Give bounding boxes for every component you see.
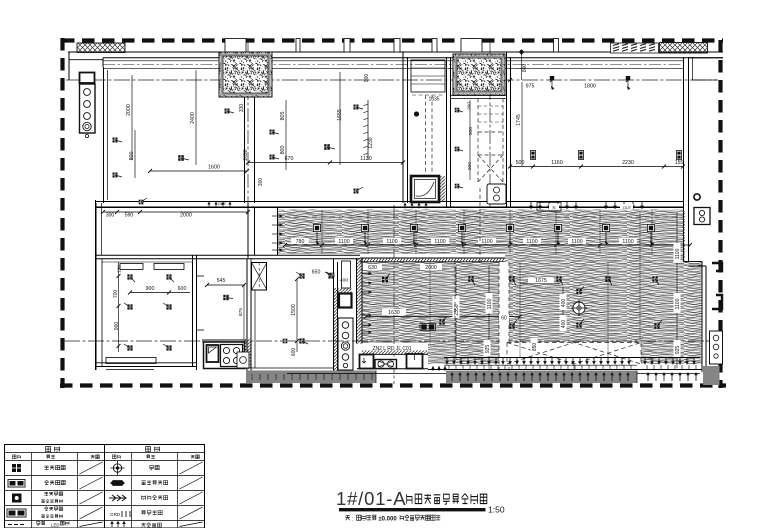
- svg-text:330: 330: [239, 104, 245, 113]
- svg-text:1130: 1130: [360, 156, 371, 162]
- svg-text:1100: 1100: [338, 239, 349, 245]
- svg-text:800: 800: [129, 152, 135, 161]
- svg-text:925: 925: [675, 346, 681, 355]
- svg-text:700: 700: [113, 290, 119, 299]
- svg-text:2000: 2000: [126, 104, 132, 116]
- svg-text:1100: 1100: [675, 248, 681, 259]
- svg-text:1100: 1100: [571, 239, 582, 245]
- svg-text:400: 400: [340, 278, 348, 284]
- svg-text:GRD: GRD: [110, 512, 121, 517]
- svg-text:1:50: 1:50: [488, 505, 505, 515]
- svg-text:1675: 1675: [535, 278, 547, 284]
- svg-text:155: 155: [675, 160, 684, 166]
- svg-text:300: 300: [258, 178, 264, 187]
- svg-text:1600: 1600: [208, 165, 220, 171]
- svg-text:2400: 2400: [190, 112, 196, 124]
- svg-text:975: 975: [526, 84, 535, 90]
- svg-text:500: 500: [516, 160, 525, 166]
- svg-text:±0.000: ±0.000: [378, 517, 397, 523]
- svg-text:2000: 2000: [180, 213, 192, 219]
- svg-text:1230: 1230: [368, 137, 374, 148]
- svg-text:1655: 1655: [337, 109, 343, 121]
- svg-text:1500: 1500: [291, 304, 297, 316]
- svg-text:900: 900: [467, 162, 473, 170]
- svg-text:600: 600: [291, 348, 297, 357]
- svg-text:N: N: [552, 205, 555, 210]
- svg-text:2230: 2230: [622, 160, 634, 166]
- svg-text:670: 670: [285, 156, 294, 162]
- svg-text:650: 650: [312, 270, 321, 276]
- svg-text:800: 800: [280, 146, 286, 155]
- svg-text:1100: 1100: [487, 298, 493, 309]
- svg-text:300: 300: [106, 213, 115, 219]
- svg-text:400: 400: [561, 299, 567, 308]
- svg-text:900: 900: [468, 127, 474, 135]
- svg-text:925: 925: [485, 345, 491, 354]
- svg-text:780: 780: [296, 239, 305, 245]
- svg-text:900: 900: [146, 286, 155, 292]
- svg-text:600: 600: [178, 286, 187, 292]
- svg-text:630: 630: [368, 265, 377, 271]
- svg-text:875: 875: [238, 308, 244, 316]
- svg-text:1160: 1160: [551, 160, 562, 166]
- svg-text:2090: 2090: [243, 149, 249, 160]
- svg-text:60: 60: [501, 316, 507, 322]
- svg-text:900: 900: [364, 74, 370, 83]
- svg-text:590: 590: [125, 213, 134, 219]
- svg-text:900: 900: [114, 322, 120, 331]
- svg-text:850: 850: [532, 343, 538, 352]
- svg-text:1800: 1800: [584, 84, 596, 90]
- svg-text:1745: 1745: [516, 114, 522, 126]
- svg-text:1100: 1100: [526, 239, 537, 245]
- svg-text:2000: 2000: [425, 265, 437, 271]
- svg-text:1035: 1035: [428, 97, 439, 103]
- svg-text:1100: 1100: [386, 239, 397, 245]
- svg-text:OUT: OUT: [623, 205, 632, 210]
- svg-text:805: 805: [280, 112, 286, 121]
- svg-text:800: 800: [522, 64, 528, 73]
- svg-text:130: 130: [117, 265, 122, 273]
- svg-text:1100: 1100: [675, 298, 681, 309]
- svg-text:1100: 1100: [481, 239, 492, 245]
- svg-text:1#/01-A: 1#/01-A: [336, 488, 406, 509]
- svg-text:260: 260: [467, 102, 473, 110]
- svg-text:400: 400: [561, 320, 567, 329]
- svg-text:1100: 1100: [434, 239, 445, 245]
- svg-text:OUT: OUT: [218, 201, 227, 206]
- svg-text:1630: 1630: [388, 310, 400, 316]
- svg-text:1100: 1100: [622, 239, 633, 245]
- svg-text:LED: LED: [51, 523, 60, 528]
- svg-text:545: 545: [217, 278, 226, 284]
